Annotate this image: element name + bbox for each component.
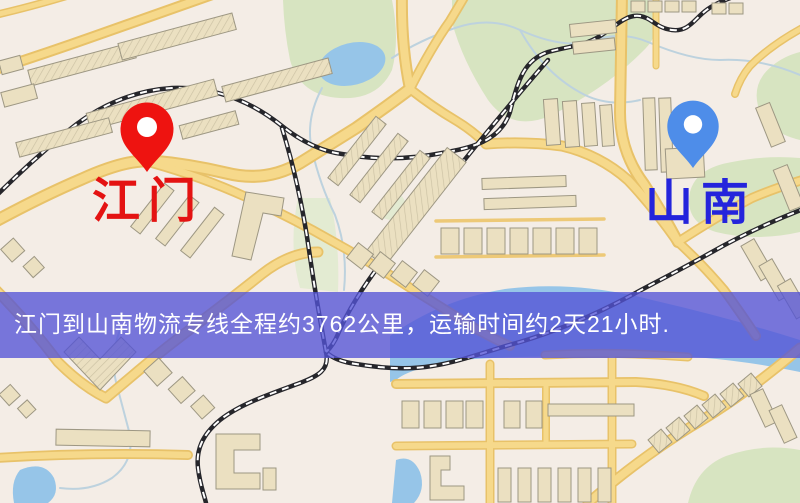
route-info-banner: 江门到山南物流专线全程约3762公里，运输时间约2天21小时. [0, 292, 800, 358]
map-view: 江门 山南 江门到山南物流专线全程约3762公里，运输时间约2天21小时. [0, 0, 800, 503]
destination-city-label: 山南 [645, 180, 757, 228]
origin-city-label: 江门 [92, 178, 204, 226]
map-canvas [0, 0, 800, 503]
route-info-text: 江门到山南物流专线全程约3762公里，运输时间约2天21小时. [0, 305, 670, 345]
